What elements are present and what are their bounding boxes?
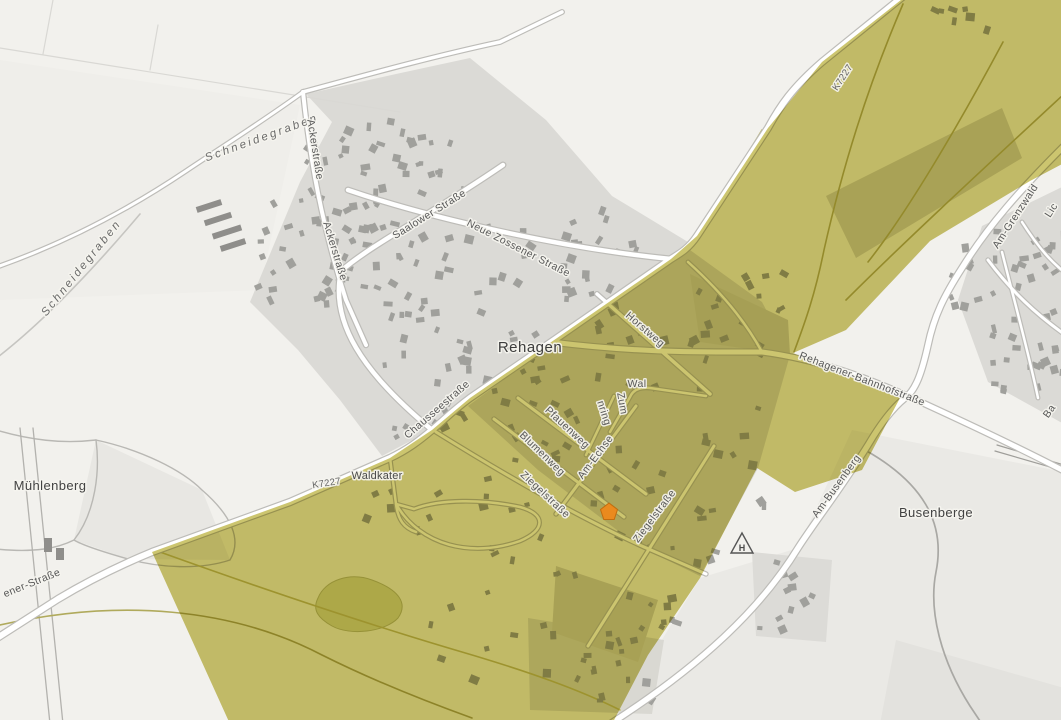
building [392, 425, 398, 431]
building [373, 262, 380, 271]
building [299, 198, 304, 203]
building [324, 300, 330, 308]
building [421, 298, 428, 305]
building [258, 239, 264, 243]
building [582, 270, 590, 279]
building [564, 296, 569, 302]
building [399, 312, 404, 318]
building [366, 122, 371, 131]
building [1004, 357, 1010, 363]
building [461, 356, 472, 366]
map-viewport[interactable]: SchneidegrabenSchneidegrabenAckerstraßeA… [0, 0, 1061, 720]
building [489, 277, 497, 285]
building [993, 255, 997, 263]
building [466, 366, 471, 374]
building [341, 145, 349, 153]
building [416, 317, 425, 323]
building [757, 626, 762, 630]
building [419, 161, 424, 166]
building [268, 286, 277, 293]
building [1019, 255, 1029, 262]
building [991, 381, 999, 386]
street-label: Wal [628, 378, 647, 390]
building [382, 362, 387, 368]
building [387, 118, 395, 126]
place-label: Busenberge [899, 505, 973, 520]
street-label: Waldkater [352, 470, 403, 482]
building [435, 271, 444, 281]
building [392, 154, 401, 163]
building [1049, 242, 1055, 249]
building [642, 678, 651, 687]
building [403, 171, 410, 177]
building [990, 360, 996, 366]
svg-text:H: H [739, 543, 746, 553]
building [431, 309, 440, 317]
map-canvas[interactable]: SchneidegrabenSchneidegrabenAckerstraßeA… [0, 0, 1061, 720]
building [405, 311, 413, 318]
building [401, 351, 406, 359]
place-label: Rehagen [498, 339, 562, 356]
building [437, 168, 442, 177]
building [383, 301, 392, 306]
building [1012, 345, 1021, 351]
place-label: Mühlenberg [14, 478, 87, 493]
building [434, 379, 441, 387]
